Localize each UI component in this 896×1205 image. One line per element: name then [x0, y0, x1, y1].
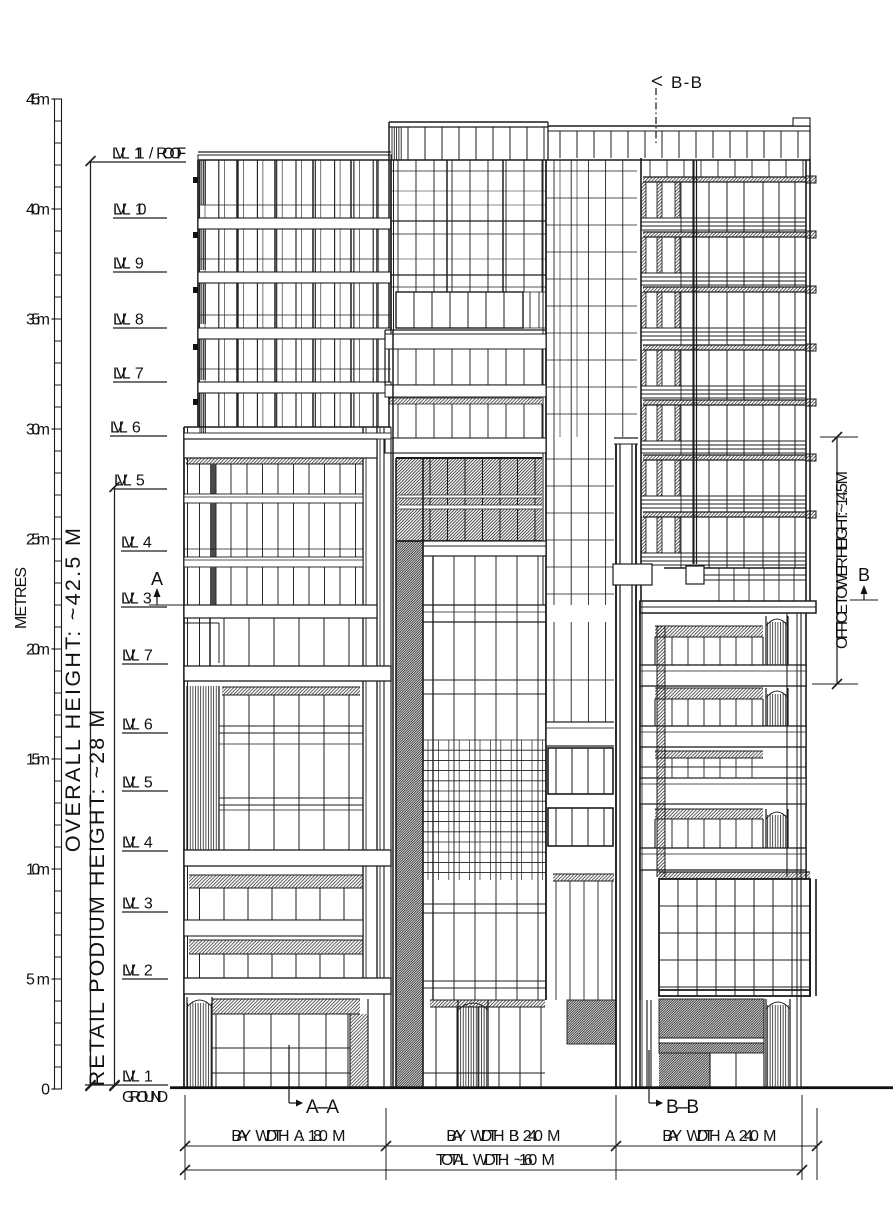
- svg-text:WIDTH: WIDTH: [255, 1128, 289, 1145]
- svg-text:40m: 40m: [26, 202, 50, 219]
- svg-text:M: M: [547, 1128, 560, 1145]
- svg-text:TOTAL: TOTAL: [436, 1152, 469, 1169]
- svg-text:5m: 5m: [26, 972, 50, 989]
- svg-text:5: 5: [136, 473, 145, 490]
- svg-text:GROUND: GROUND: [122, 1089, 168, 1106]
- svg-text:45m: 45m: [26, 92, 50, 109]
- svg-text:LVL: LVL: [113, 366, 131, 383]
- svg-text:RETAIL PODIUM HEIGHT: ~28 M: RETAIL PODIUM HEIGHT: ~28 M: [85, 708, 109, 1087]
- svg-text:LVL: LVL: [113, 256, 131, 273]
- svg-text:4: 4: [143, 535, 152, 552]
- svg-text:LVL: LVL: [122, 835, 140, 852]
- svg-text:METRES: METRES: [13, 567, 30, 629]
- svg-text:BAY: BAY: [446, 1128, 466, 1145]
- svg-text:/: /: [149, 146, 154, 163]
- svg-text:7: 7: [135, 366, 144, 383]
- svg-text:1: 1: [144, 1069, 153, 1086]
- svg-text:LVL: LVL: [113, 312, 131, 329]
- svg-text:10: 10: [135, 202, 147, 219]
- svg-text:A–A: A–A: [306, 1097, 339, 1118]
- svg-text:M: M: [542, 1152, 555, 1169]
- svg-text:WIDTH: WIDTH: [470, 1128, 504, 1145]
- svg-text:BAY: BAY: [231, 1128, 251, 1145]
- svg-text:18.0: 18.0: [308, 1128, 328, 1145]
- svg-text:LVL: LVL: [112, 146, 130, 163]
- svg-text:LVL: LVL: [122, 1069, 140, 1086]
- svg-text:LVL: LVL: [122, 896, 140, 913]
- svg-text:LVL: LVL: [114, 473, 132, 490]
- svg-text:M: M: [763, 1128, 776, 1145]
- svg-text:LVL: LVL: [113, 202, 131, 219]
- svg-text:OFFICE TOWER HEIGHT: ~14.5 M: OFFICE TOWER HEIGHT: ~14.5 M: [834, 471, 851, 649]
- svg-text:A: A: [151, 569, 163, 589]
- svg-text:25m: 25m: [26, 532, 50, 549]
- svg-text:LVL: LVL: [121, 591, 139, 608]
- svg-text:B: B: [858, 565, 870, 585]
- svg-text:LVL: LVL: [121, 535, 139, 552]
- svg-text:30m: 30m: [26, 422, 50, 439]
- svg-text:4: 4: [144, 835, 153, 852]
- svg-text:B:: B:: [509, 1128, 520, 1145]
- svg-text:WIDTH:: WIDTH:: [473, 1152, 510, 1169]
- svg-text:15m: 15m: [26, 752, 50, 769]
- svg-text:LVL: LVL: [122, 717, 140, 734]
- svg-text:11: 11: [134, 146, 145, 163]
- svg-text:WIDTH: WIDTH: [686, 1128, 720, 1145]
- svg-text:35m: 35m: [26, 312, 50, 329]
- svg-text:7: 7: [144, 648, 153, 665]
- svg-text:LVL: LVL: [122, 648, 140, 665]
- svg-text:20m: 20m: [26, 642, 50, 659]
- svg-text:6: 6: [144, 717, 153, 734]
- svg-text:9: 9: [135, 256, 144, 273]
- svg-text:6: 6: [132, 420, 141, 437]
- svg-text:LVL: LVL: [122, 775, 140, 792]
- svg-text:5: 5: [144, 775, 153, 792]
- svg-text:3: 3: [144, 896, 153, 913]
- svg-text:24.0: 24.0: [739, 1128, 759, 1145]
- svg-text:2: 2: [144, 963, 153, 980]
- svg-text:B–B: B–B: [666, 1097, 699, 1118]
- svg-text:BAY: BAY: [662, 1128, 682, 1145]
- svg-text:ROOF: ROOF: [156, 146, 186, 163]
- svg-text:OVERALL HEIGHT: ~42.5 M: OVERALL HEIGHT: ~42.5 M: [61, 526, 85, 852]
- svg-text:B-B: B-B: [671, 73, 702, 92]
- svg-text:~160: ~160: [514, 1152, 537, 1169]
- svg-text:0: 0: [41, 1082, 50, 1099]
- svg-text:A:: A:: [725, 1128, 736, 1145]
- svg-text:A:: A:: [294, 1128, 305, 1145]
- svg-text:24.0: 24.0: [523, 1128, 543, 1145]
- svg-text:M: M: [332, 1128, 345, 1145]
- svg-text:LVL: LVL: [110, 420, 128, 437]
- svg-text:8: 8: [135, 312, 144, 329]
- svg-text:10m: 10m: [26, 862, 50, 879]
- svg-text:LVL: LVL: [122, 963, 140, 980]
